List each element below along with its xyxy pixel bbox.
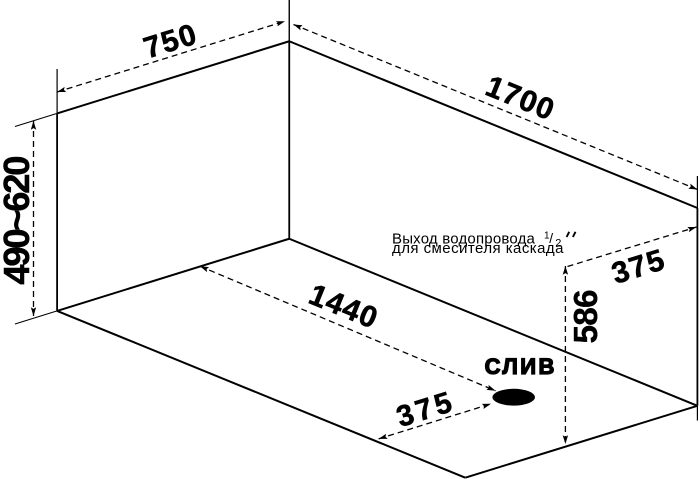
svg-text:1700: 1700 (481, 70, 560, 128)
svg-text:375: 375 (393, 385, 459, 434)
svg-text:для смесителя каскада: для смесителя каскада (392, 240, 564, 257)
svg-text:586: 586 (568, 290, 605, 343)
svg-text:СЛИВ: СЛИВ (485, 354, 557, 379)
svg-text:490~620: 490~620 (0, 157, 37, 285)
svg-text:375: 375 (608, 243, 670, 291)
svg-text:750: 750 (140, 18, 202, 66)
